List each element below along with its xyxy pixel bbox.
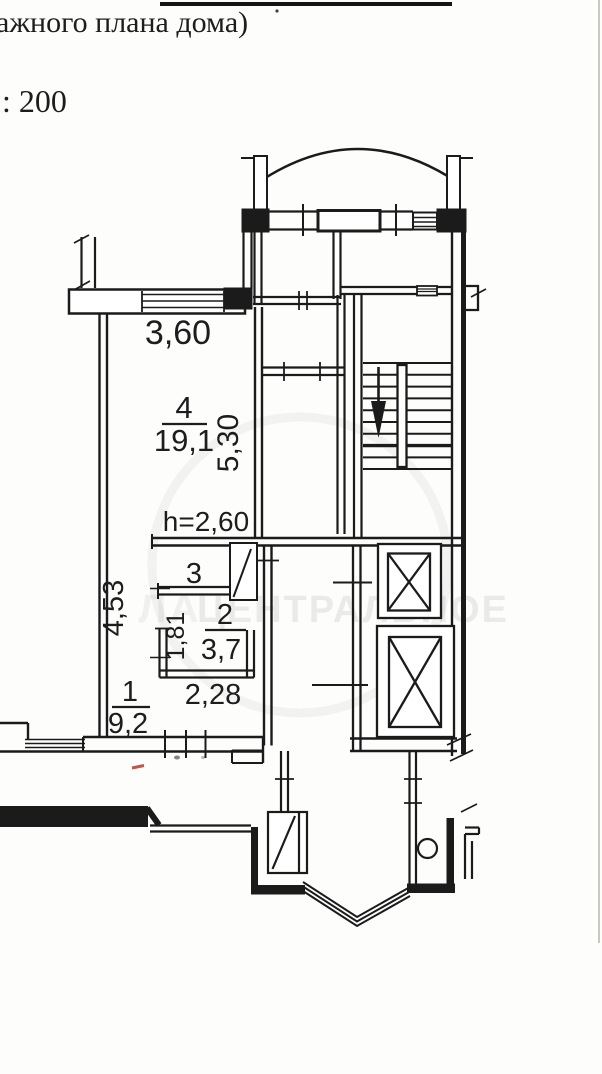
wall-block [251, 827, 258, 894]
room4-area: 19,1 [154, 423, 214, 458]
wall-step [147, 808, 159, 825]
scanned-floor-plan-page: ЛА ЦЕНТРАЛЬНОЕ ажного плана дома) : 200 [0, 0, 602, 1074]
stair-stringer [398, 365, 407, 467]
bottom-right-room [404, 752, 479, 893]
room2-number: 2 [217, 599, 233, 631]
ink-dot [275, 9, 278, 12]
ink-speck [174, 756, 180, 760]
scan-artifacts [132, 756, 205, 769]
floor-plan-drawing: ЛА ЦЕНТРАЛЬНОЕ ажного плана дома) : 200 [0, 0, 602, 1074]
room1-number: 1 [122, 676, 138, 708]
balcony-partitions [253, 231, 452, 310]
red-pen-mark [132, 766, 144, 769]
column-symbol [418, 839, 437, 858]
bay-stub-right [447, 156, 460, 212]
elevators [377, 544, 454, 737]
scale-label: : 200 [2, 83, 67, 119]
page-title-fragment: ажного плана дома) [0, 6, 248, 39]
bay-stub-left [254, 156, 267, 212]
dim-hall-length: 4,53 [98, 580, 130, 636]
break-mark [461, 804, 477, 812]
room3-number: 3 [186, 558, 202, 590]
bay-window-chevron [303, 882, 410, 926]
floor-plan: 3,60 4 19,1 5,30 h=2,60 3 2 3,7 1,81 2,2… [0, 149, 486, 926]
wall-block [447, 818, 455, 893]
thick-wall-band [0, 806, 148, 827]
plan-labels: 3,60 4 19,1 5,30 h=2,60 3 2 3,7 1,81 2,2… [98, 314, 249, 740]
left-wing-wall [69, 230, 252, 314]
room2-area: 3,7 [201, 634, 241, 666]
dim-bath-length: 2,28 [185, 679, 241, 711]
balcony-bay [241, 149, 473, 212]
dim-room4-depth: 5,30 [212, 414, 245, 472]
bay-arc [259, 149, 457, 182]
wall-block [242, 209, 269, 232]
room1-area: 9,2 [108, 708, 148, 740]
room4-number: 4 [175, 390, 192, 425]
lower-left-walls [0, 806, 305, 895]
header: ажного плана дома) : 200 [0, 0, 599, 943]
wall-block [251, 885, 305, 895]
ink-speck [201, 756, 205, 759]
vent-grille [417, 286, 437, 296]
wall-block [224, 288, 252, 309]
ceiling-height-label: h=2,60 [163, 506, 249, 537]
balcony-door-block [318, 211, 380, 232]
top-exterior-wall [242, 204, 466, 236]
entrance-vestibule [268, 751, 307, 873]
dim-bath-width: 1,81 [162, 612, 190, 661]
dim-room4-width: 3,60 [145, 314, 211, 352]
